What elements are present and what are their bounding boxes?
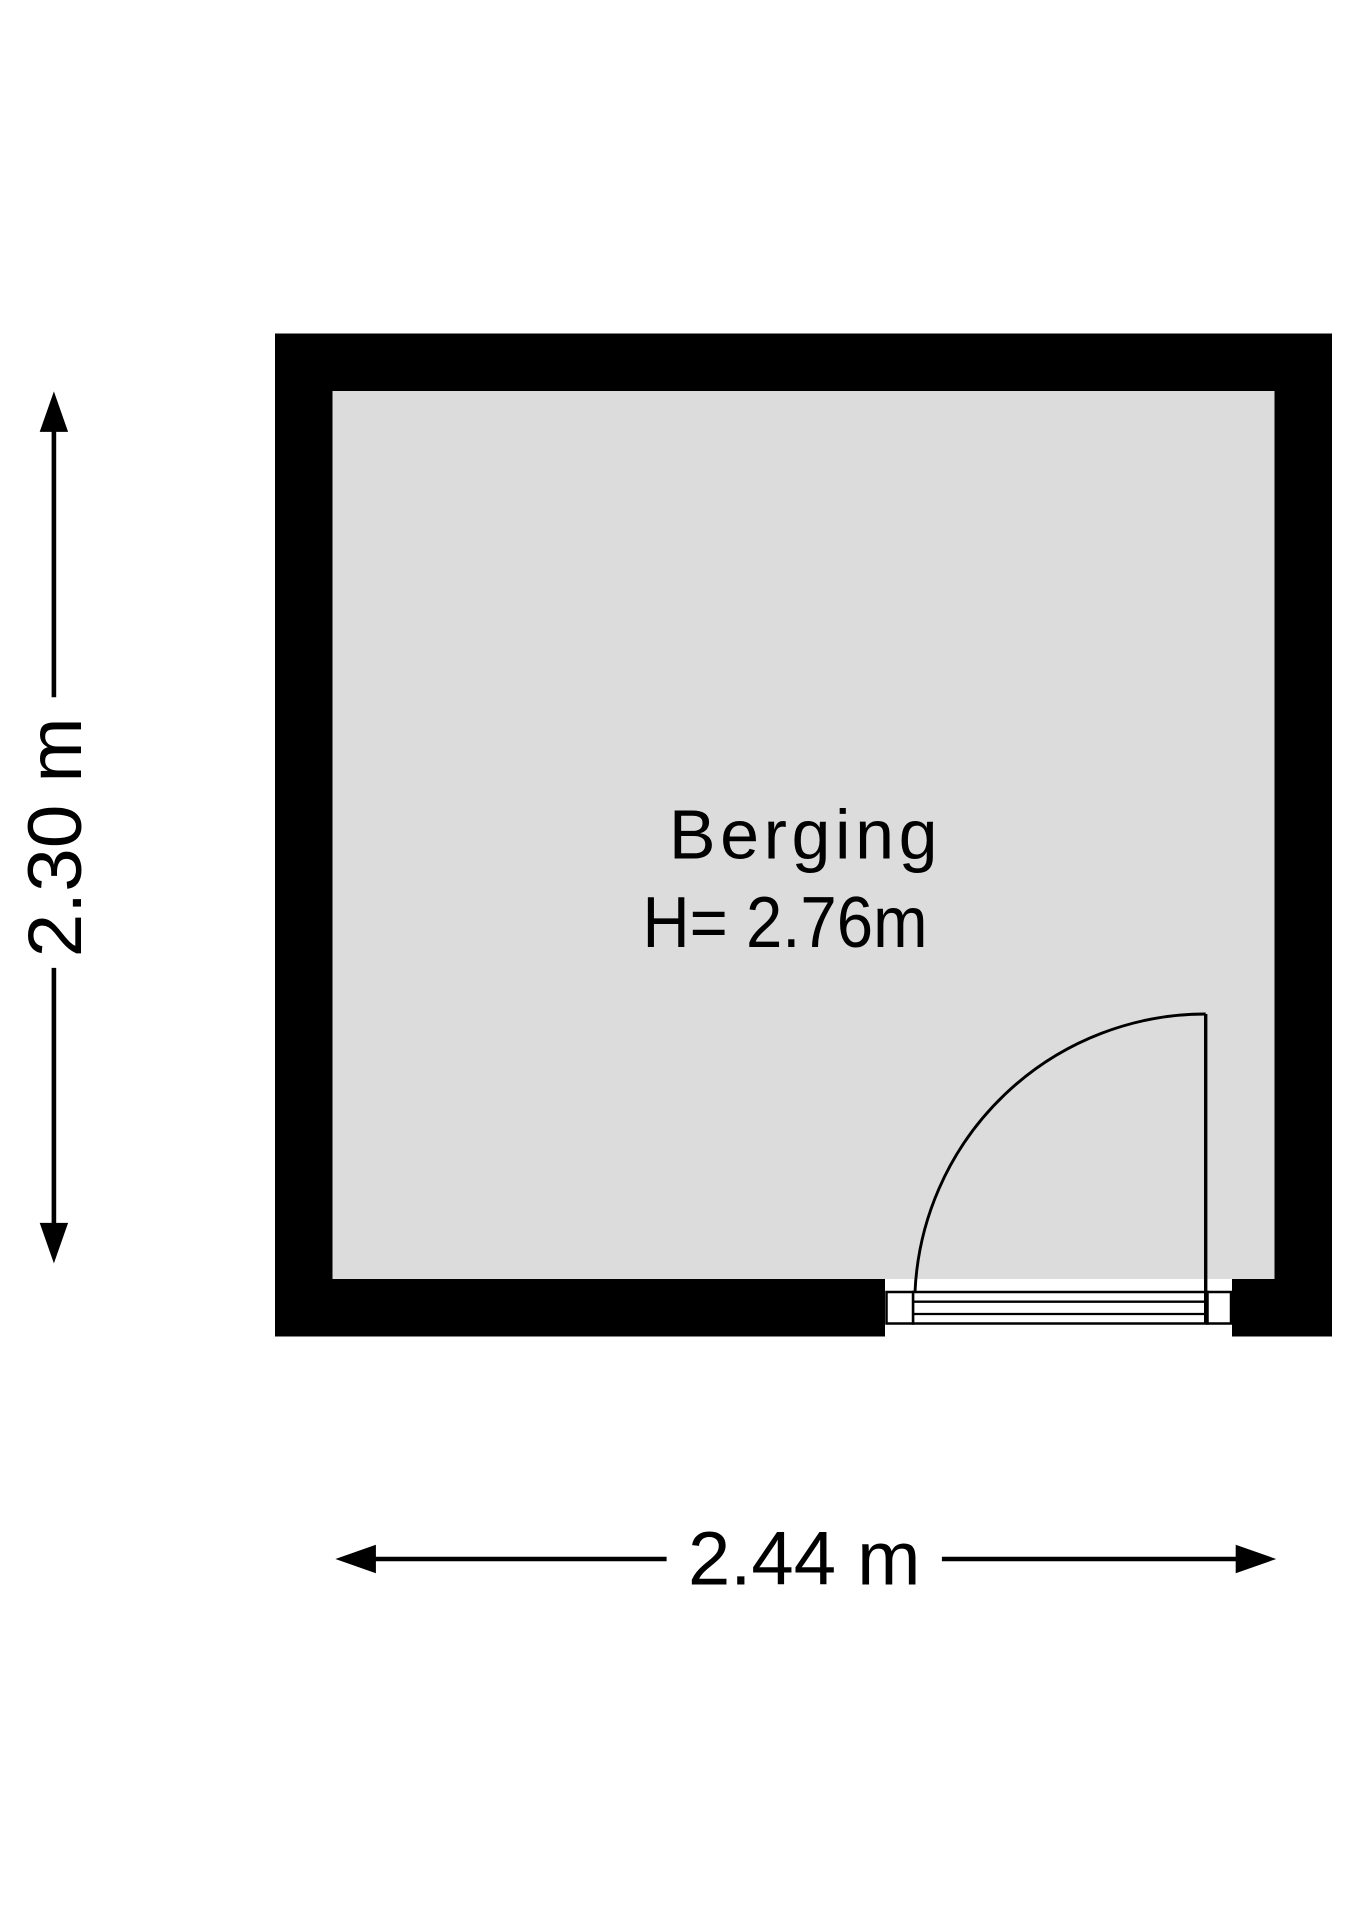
svg-text:2.44 m: 2.44 m (688, 1517, 921, 1602)
svg-text:H= 2.76m: H= 2.76m (643, 882, 928, 963)
svg-text:2.30 m: 2.30 m (13, 717, 98, 957)
